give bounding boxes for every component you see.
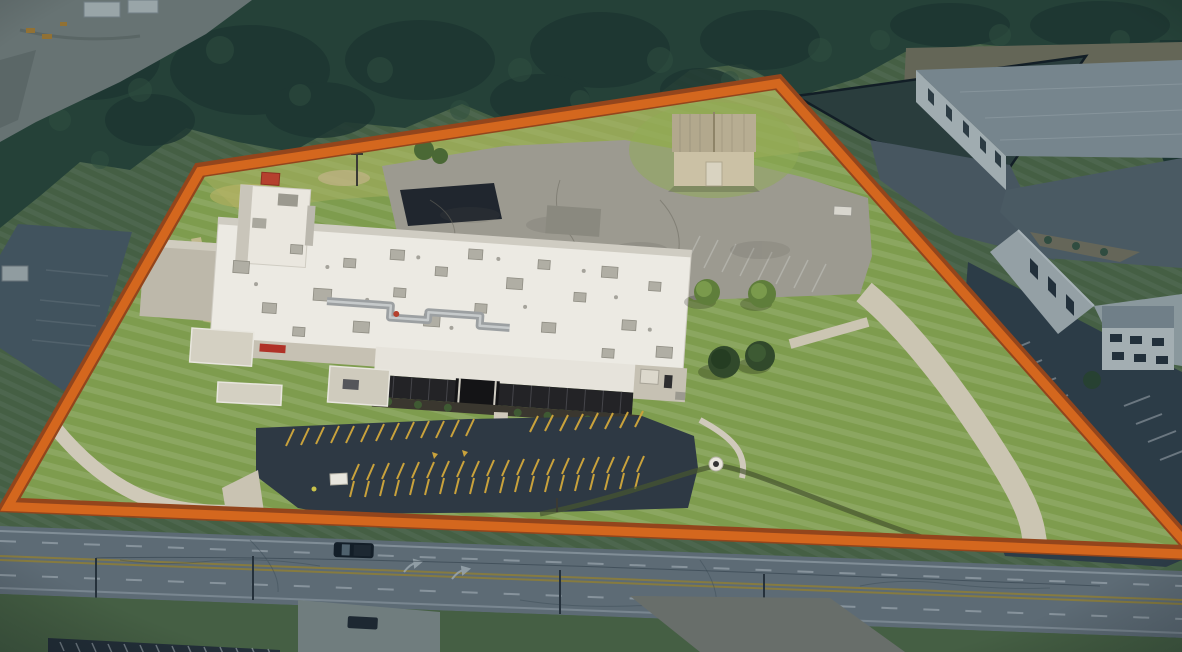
vignette-overlay <box>0 0 1182 652</box>
aerial-photo-canvas <box>0 0 1182 652</box>
aerial-photo <box>0 0 1182 652</box>
